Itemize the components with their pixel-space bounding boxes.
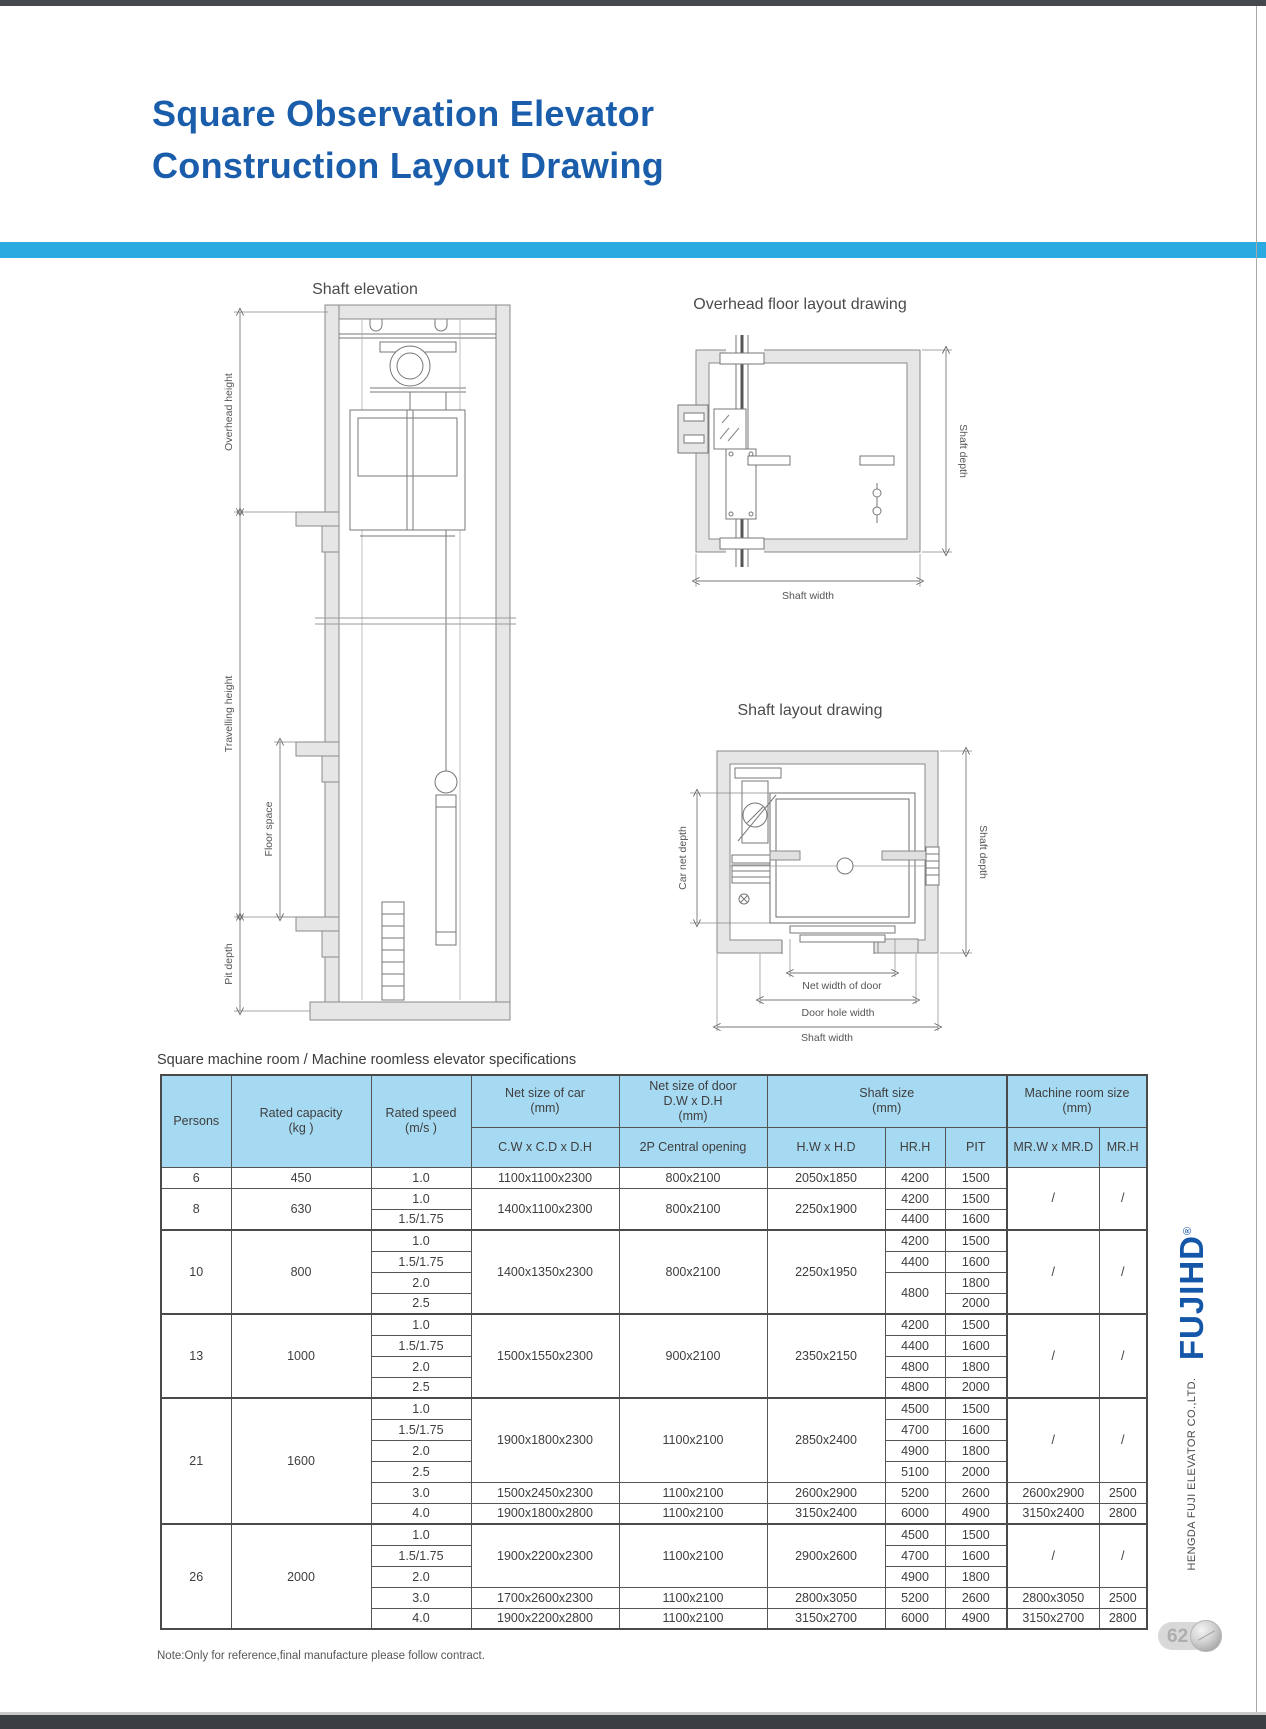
shaft-layout-drawing: Car net depth Shaft depth Net width of d… bbox=[620, 723, 1000, 1045]
table-cell: 4700 bbox=[885, 1419, 945, 1440]
table-cell: 1900x2200x2300 bbox=[471, 1524, 619, 1587]
overhead-layout-figure: Overhead floor layout drawing bbox=[620, 296, 980, 617]
table-cell: 1.5/1.75 bbox=[371, 1251, 471, 1272]
car-net-depth-label: Car net depth bbox=[677, 826, 689, 890]
table-cell: 4200 bbox=[885, 1230, 945, 1251]
table-cell: 1600 bbox=[231, 1398, 371, 1524]
table-cell: 900x2100 bbox=[619, 1314, 767, 1398]
top-bar bbox=[0, 0, 1266, 6]
table-cell: 4800 bbox=[885, 1356, 945, 1377]
table-cell: 6000 bbox=[885, 1503, 945, 1524]
table-cell: 4200 bbox=[885, 1188, 945, 1209]
header-cell: 2P Central opening bbox=[619, 1127, 767, 1167]
shaft-elevation-drawing: Overhead height Travelling height Floor … bbox=[210, 302, 520, 1050]
table-cell: 2850x2400 bbox=[767, 1398, 885, 1482]
table-cell: 2600x2900 bbox=[767, 1482, 885, 1503]
table-cell: 1100x2100 bbox=[619, 1398, 767, 1482]
table-cell: 1100x2100 bbox=[619, 1482, 767, 1503]
overhead-layout-title: Overhead floor layout drawing bbox=[620, 296, 980, 314]
table-cell: / bbox=[1007, 1167, 1099, 1230]
header-cell: MR.H bbox=[1099, 1127, 1147, 1167]
globe-icon bbox=[1190, 1620, 1222, 1652]
spec-table: PersonsRated capacity (kg )Rated speed (… bbox=[160, 1074, 1148, 1630]
table-cell: 4200 bbox=[885, 1314, 945, 1335]
table-cell: / bbox=[1099, 1398, 1147, 1482]
page-edge-line bbox=[1256, 6, 1257, 1712]
company-name: HENGDA FUJI ELEVATOR CO.,LTD. bbox=[1186, 1374, 1200, 1574]
table-cell: 1000 bbox=[231, 1314, 371, 1398]
door-hole-width-label: Door hole width bbox=[802, 1007, 875, 1019]
table-cell: 1600 bbox=[945, 1209, 1007, 1230]
layout-shaft-depth-label: Shaft depth bbox=[977, 825, 989, 879]
table-cell: 26 bbox=[161, 1524, 231, 1629]
header-cell: Shaft size (mm) bbox=[767, 1075, 1007, 1127]
table-cell: 1800 bbox=[945, 1356, 1007, 1377]
table-cell: 1100x2100 bbox=[619, 1608, 767, 1629]
shaft-layout-title: Shaft layout drawing bbox=[620, 702, 1000, 720]
table-cell: 1.0 bbox=[371, 1188, 471, 1209]
table-cell: 8 bbox=[161, 1188, 231, 1230]
page-number: 62 bbox=[1167, 1626, 1188, 1648]
table-cell: 1500x2450x2300 bbox=[471, 1482, 619, 1503]
header-cell: C.W x C.D x D.H bbox=[471, 1127, 619, 1167]
net-width-of-door-label: Net width of door bbox=[802, 980, 882, 992]
table-cell: 4900 bbox=[885, 1566, 945, 1587]
table-cell: 1900x1800x2300 bbox=[471, 1398, 619, 1482]
table-cell: 2000 bbox=[945, 1377, 1007, 1398]
table-cell: 5200 bbox=[885, 1587, 945, 1608]
table-cell: 1900x2200x2800 bbox=[471, 1608, 619, 1629]
table-cell: 4900 bbox=[945, 1608, 1007, 1629]
header-cell: Rated capacity (kg ) bbox=[231, 1075, 371, 1167]
header-cell: MR.W x MR.D bbox=[1007, 1127, 1099, 1167]
table-cell: / bbox=[1099, 1314, 1147, 1398]
table-cell: 2800 bbox=[1099, 1503, 1147, 1524]
table-cell: 2600 bbox=[945, 1482, 1007, 1503]
registered-mark: ® bbox=[1182, 1226, 1194, 1235]
header-cell: H.W x H.D bbox=[767, 1127, 885, 1167]
table-cell: 4400 bbox=[885, 1251, 945, 1272]
catalog-page: Square Observation Elevator Construction… bbox=[0, 0, 1266, 1729]
table-cell: 1500 bbox=[945, 1167, 1007, 1188]
layout-shaft-width-label: Shaft width bbox=[801, 1032, 853, 1044]
table-cell: 4500 bbox=[885, 1524, 945, 1545]
table-cell: 1400x1100x2300 bbox=[471, 1188, 619, 1230]
table-cell: 1100x1100x2300 bbox=[471, 1167, 619, 1188]
fujihd-logo: FUJIHD® bbox=[1173, 1207, 1213, 1379]
table-cell: 1100x2100 bbox=[619, 1587, 767, 1608]
table-cell: 1600 bbox=[945, 1335, 1007, 1356]
table-cell: 1.5/1.75 bbox=[371, 1209, 471, 1230]
table-cell: 6 bbox=[161, 1167, 231, 1188]
table-cell: 2050x1850 bbox=[767, 1167, 885, 1188]
table-cell: 2350x2150 bbox=[767, 1314, 885, 1398]
pit-depth-label: Pit depth bbox=[223, 943, 235, 985]
table-cell: 800x2100 bbox=[619, 1230, 767, 1314]
table-cell: 800x2100 bbox=[619, 1167, 767, 1188]
overhead-shaft-depth-label: Shaft depth bbox=[957, 424, 969, 478]
overhead-height-label: Overhead height bbox=[223, 373, 235, 451]
table-cell: 1.0 bbox=[371, 1167, 471, 1188]
table-cell: 1.5/1.75 bbox=[371, 1419, 471, 1440]
table-cell: 1.0 bbox=[371, 1524, 471, 1545]
travelling-height-label: Travelling height bbox=[223, 676, 235, 753]
table-cell: 2000 bbox=[945, 1293, 1007, 1314]
table-row: 1310001.01500x1550x2300900x21002350x2150… bbox=[161, 1314, 1147, 1335]
table-cell: 1500x1550x2300 bbox=[471, 1314, 619, 1398]
table-cell: 5100 bbox=[885, 1461, 945, 1482]
table-cell: 1500 bbox=[945, 1188, 1007, 1209]
table-cell: 1600 bbox=[945, 1545, 1007, 1566]
table-cell: 1600 bbox=[945, 1419, 1007, 1440]
bottom-bar bbox=[0, 1712, 1266, 1729]
shaft-elevation-figure: Shaft elevation bbox=[210, 281, 520, 1050]
table-cell: 2900x2600 bbox=[767, 1524, 885, 1587]
table-cell: 4900 bbox=[945, 1503, 1007, 1524]
table-cell: 1800 bbox=[945, 1566, 1007, 1587]
header-cell: Net size of car (mm) bbox=[471, 1075, 619, 1127]
table-cell: 2600 bbox=[945, 1587, 1007, 1608]
table-cell: 1.5/1.75 bbox=[371, 1545, 471, 1566]
table-cell: 1800 bbox=[945, 1440, 1007, 1461]
table-cell: 2600x2900 bbox=[1007, 1482, 1099, 1503]
header-cell: Persons bbox=[161, 1075, 231, 1167]
table-cell: 4400 bbox=[885, 1209, 945, 1230]
table-cell: 1500 bbox=[945, 1230, 1007, 1251]
table-cell: 3150x2700 bbox=[1007, 1608, 1099, 1629]
table-cell: 450 bbox=[231, 1167, 371, 1188]
table-cell: 3150x2400 bbox=[1007, 1503, 1099, 1524]
table-cell: 4800 bbox=[885, 1272, 945, 1314]
table-cell: 4900 bbox=[885, 1440, 945, 1461]
table-row: 108001.01400x1350x2300800x21002250x19504… bbox=[161, 1230, 1147, 1251]
page-title: Square Observation Elevator Construction… bbox=[152, 88, 664, 192]
table-cell: 2500 bbox=[1099, 1587, 1147, 1608]
table-cell: 1800 bbox=[945, 1272, 1007, 1293]
table-cell: 2800x3050 bbox=[1007, 1587, 1099, 1608]
table-cell: 2.5 bbox=[371, 1293, 471, 1314]
header-cell: Machine room size (mm) bbox=[1007, 1075, 1147, 1127]
floor-space-label: Floor space bbox=[263, 801, 275, 856]
table-row: 2116001.01900x1800x23001100x21002850x240… bbox=[161, 1398, 1147, 1419]
table-cell: / bbox=[1007, 1524, 1099, 1587]
table-cell: 4500 bbox=[885, 1398, 945, 1419]
table-cell: 1500 bbox=[945, 1314, 1007, 1335]
table-cell: 800x2100 bbox=[619, 1188, 767, 1230]
overhead-layout-drawing: Shaft depth Shaft width bbox=[620, 317, 980, 617]
table-cell: 4800 bbox=[885, 1377, 945, 1398]
table-cell: 2.0 bbox=[371, 1356, 471, 1377]
table-cell: 2.0 bbox=[371, 1440, 471, 1461]
table-cell: 1.0 bbox=[371, 1398, 471, 1419]
table-cell: 2250x1950 bbox=[767, 1230, 885, 1314]
table-cell: 1400x1350x2300 bbox=[471, 1230, 619, 1314]
table-cell: 4.0 bbox=[371, 1608, 471, 1629]
table-cell: 1600 bbox=[945, 1251, 1007, 1272]
table-cell: 2800x3050 bbox=[767, 1587, 885, 1608]
table-cell: 1500 bbox=[945, 1398, 1007, 1419]
table-cell: 2500 bbox=[1099, 1482, 1147, 1503]
page-title-line1: Square Observation Elevator bbox=[152, 88, 664, 140]
table-cell: 2.0 bbox=[371, 1566, 471, 1587]
table-cell: / bbox=[1099, 1167, 1147, 1230]
table-cell: 2000 bbox=[945, 1461, 1007, 1482]
table-row: 64501.01100x1100x2300800x21002050x185042… bbox=[161, 1167, 1147, 1188]
table-cell: 1.0 bbox=[371, 1314, 471, 1335]
table-cell: / bbox=[1007, 1230, 1099, 1314]
header-cell: PIT bbox=[945, 1127, 1007, 1167]
table-cell: 2800 bbox=[1099, 1608, 1147, 1629]
table-cell: 1700x2600x2300 bbox=[471, 1587, 619, 1608]
header-cell: HR.H bbox=[885, 1127, 945, 1167]
table-cell: 2000 bbox=[231, 1524, 371, 1629]
footnote: Note:Only for reference,final manufactur… bbox=[157, 1650, 485, 1662]
overhead-shaft-width-label: Shaft width bbox=[782, 590, 834, 602]
table-cell: 4700 bbox=[885, 1545, 945, 1566]
header-cell: Rated speed (m/s ) bbox=[371, 1075, 471, 1167]
shaft-elevation-title: Shaft elevation bbox=[210, 281, 520, 299]
table-cell: 1500 bbox=[945, 1524, 1007, 1545]
page-title-line2: Construction Layout Drawing bbox=[152, 140, 664, 192]
table-cell: 21 bbox=[161, 1398, 231, 1524]
fujihd-logo-text: FUJIHD bbox=[1173, 1235, 1210, 1360]
table-cell: / bbox=[1099, 1230, 1147, 1314]
table-cell: 1100x2100 bbox=[619, 1503, 767, 1524]
table-cell: 1900x1800x2800 bbox=[471, 1503, 619, 1524]
table-caption: Square machine room / Machine roomless e… bbox=[157, 1052, 576, 1068]
table-cell: 800 bbox=[231, 1230, 371, 1314]
table-cell: 4.0 bbox=[371, 1503, 471, 1524]
table-cell: / bbox=[1099, 1524, 1147, 1587]
table-cell: 2.5 bbox=[371, 1377, 471, 1398]
table-cell: 5200 bbox=[885, 1482, 945, 1503]
table-cell: 3.0 bbox=[371, 1587, 471, 1608]
table-cell: 1.0 bbox=[371, 1230, 471, 1251]
table-cell: 2.5 bbox=[371, 1461, 471, 1482]
table-cell: 630 bbox=[231, 1188, 371, 1230]
table-cell: 13 bbox=[161, 1314, 231, 1398]
table-cell: 2.0 bbox=[371, 1272, 471, 1293]
table-cell: 1100x2100 bbox=[619, 1524, 767, 1587]
table-row: 86301.01400x1100x2300800x21002250x190042… bbox=[161, 1188, 1147, 1209]
table-cell: 10 bbox=[161, 1230, 231, 1314]
table-cell: 4400 bbox=[885, 1335, 945, 1356]
accent-divider bbox=[0, 242, 1266, 258]
table-cell: 1.5/1.75 bbox=[371, 1335, 471, 1356]
table-cell: 3150x2700 bbox=[767, 1608, 885, 1629]
header-cell: Net size of door D.W x D.H (mm) bbox=[619, 1075, 767, 1127]
table-cell: 3.0 bbox=[371, 1482, 471, 1503]
table-cell: 2250x1900 bbox=[767, 1188, 885, 1230]
spec-table-wrap: PersonsRated capacity (kg )Rated speed (… bbox=[160, 1074, 1148, 1630]
table-cell: / bbox=[1007, 1314, 1099, 1398]
table-cell: 3150x2400 bbox=[767, 1503, 885, 1524]
table-row: 2620001.01900x2200x23001100x21002900x260… bbox=[161, 1524, 1147, 1545]
table-cell: / bbox=[1007, 1398, 1099, 1482]
shaft-layout-figure: Shaft layout drawing bbox=[620, 702, 1000, 1045]
table-cell: 6000 bbox=[885, 1608, 945, 1629]
table-cell: 4200 bbox=[885, 1167, 945, 1188]
